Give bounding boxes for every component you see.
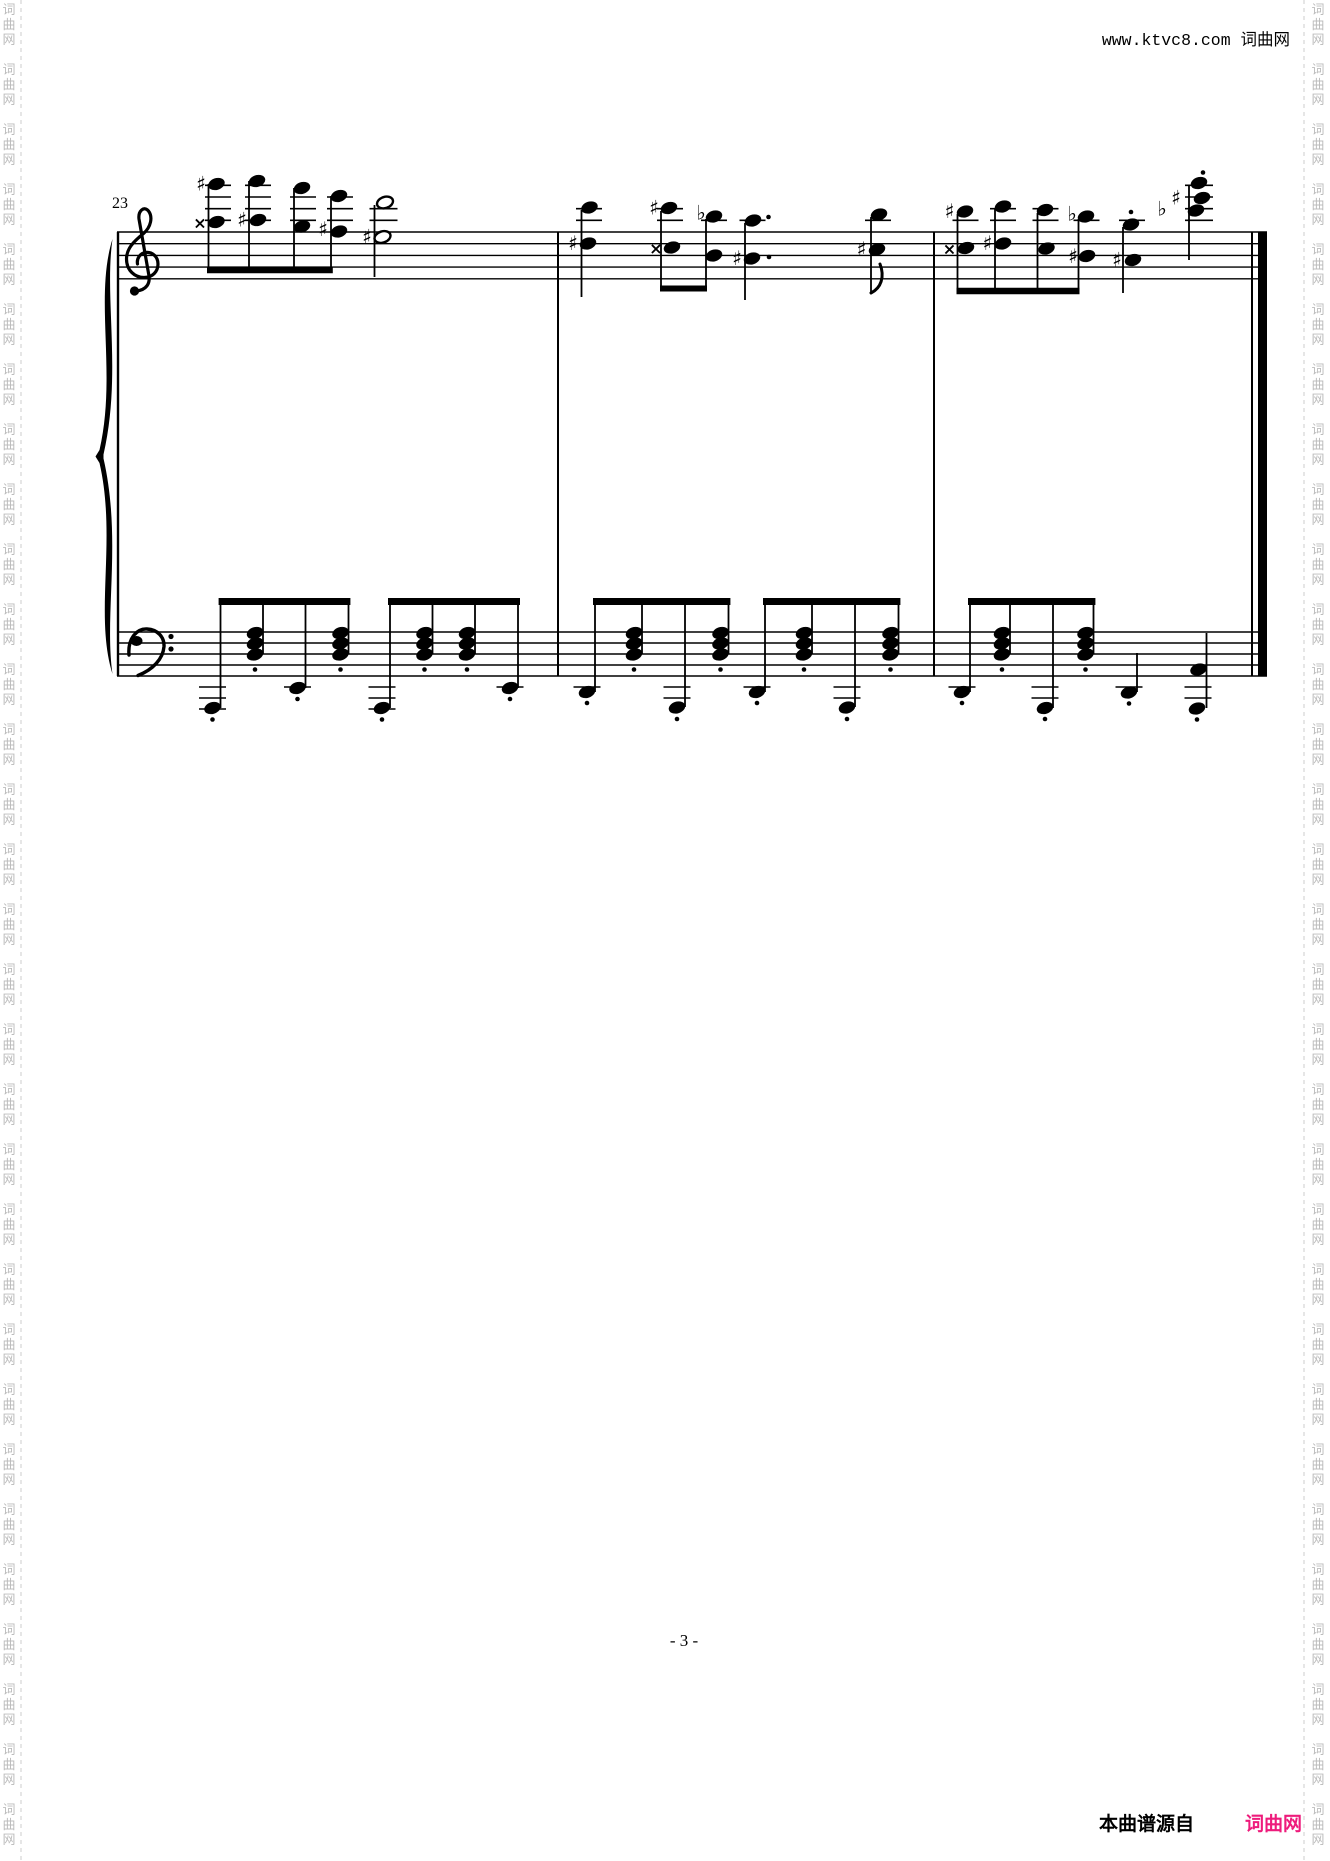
- beam: [660, 286, 707, 292]
- watermark-char: 曲: [1311, 1218, 1324, 1233]
- beam: [207, 267, 333, 274]
- staccato-dot: [422, 667, 427, 672]
- watermark-char: 曲: [1311, 438, 1324, 453]
- notehead: [794, 647, 813, 663]
- watermark-char: 网: [1311, 33, 1324, 48]
- sharp-accidental: ♯: [732, 246, 742, 270]
- dot: [1195, 717, 1200, 722]
- notehead: [500, 680, 519, 696]
- watermark-char: 曲: [2, 198, 15, 213]
- watermark-char: 词: [2, 783, 15, 798]
- watermark-char: 曲: [2, 258, 15, 273]
- watermark-char: 曲: [2, 1638, 15, 1653]
- watermark-char: 曲: [1311, 1458, 1324, 1473]
- watermark-char: 词: [2, 903, 15, 918]
- watermark-char: 曲: [2, 738, 15, 753]
- watermark-char: 词: [2, 423, 15, 438]
- dot: [1043, 717, 1048, 722]
- flat-accidental: ♭: [1067, 202, 1076, 226]
- notehead: [881, 647, 900, 663]
- watermark-char: 网: [1311, 513, 1324, 528]
- watermark-char: 词: [2, 1023, 15, 1038]
- watermark-char: 词: [1311, 483, 1324, 498]
- watermark-char: 曲: [2, 798, 15, 813]
- watermark-char: 网: [1311, 153, 1324, 168]
- watermark-char: 曲: [2, 1338, 15, 1353]
- watermark-char: 曲: [2, 1818, 15, 1833]
- watermark-char: 网: [2, 813, 15, 828]
- sharp-accidental: ♯: [1112, 248, 1122, 272]
- sheet-music-page: 词曲网词曲网词曲网词曲网词曲网词曲网词曲网词曲网词曲网词曲网词曲网词曲网词曲网词…: [0, 0, 1330, 1861]
- watermark-char: 词: [1311, 843, 1324, 858]
- notehead: [457, 647, 476, 663]
- beam: [219, 598, 351, 605]
- double-sharp-accidental: ×: [649, 239, 662, 258]
- watermark-char: 曲: [1311, 18, 1324, 33]
- watermark-char: 词: [1311, 1443, 1324, 1458]
- watermark-char: 词: [2, 1443, 15, 1458]
- watermark-char: 曲: [1311, 1698, 1324, 1713]
- watermark-char: 曲: [2, 858, 15, 873]
- watermark-char: 曲: [1311, 1638, 1324, 1653]
- watermark-char: 网: [1311, 1833, 1324, 1848]
- watermark-char: 曲: [1311, 318, 1324, 333]
- watermark-char: 词: [1311, 543, 1324, 558]
- notehead: [704, 248, 723, 264]
- watermark-char: 词: [2, 663, 15, 678]
- watermark-char: 词: [1311, 423, 1324, 438]
- watermark-char: 网: [2, 333, 15, 348]
- dot: [960, 701, 965, 706]
- sharp-accidental: ♯: [196, 172, 206, 196]
- notehead: [659, 200, 678, 216]
- watermark-char: 曲: [1311, 1338, 1324, 1353]
- watermark-char: 网: [1311, 93, 1324, 108]
- watermark-char: 词: [1311, 123, 1324, 138]
- watermark-char: 曲: [2, 1398, 15, 1413]
- notehead: [993, 199, 1012, 215]
- notehead: [247, 173, 266, 189]
- dot: [675, 717, 680, 722]
- double-sharp-accidental: ×: [943, 240, 956, 259]
- watermark-char: 词: [2, 1563, 15, 1578]
- watermark-char: 词: [2, 1503, 15, 1518]
- watermark-char: 词: [2, 483, 15, 498]
- watermark-char: 曲: [1311, 618, 1324, 633]
- staccato-dot: [718, 667, 723, 672]
- watermark-char: 曲: [1311, 498, 1324, 513]
- watermark-char: 词: [2, 723, 15, 738]
- watermark-char: 曲: [2, 1158, 15, 1173]
- watermark-char: 词: [1311, 363, 1324, 378]
- notehead: [1187, 701, 1206, 717]
- watermark-char: 词: [1311, 243, 1324, 258]
- staccato-dot: [1083, 667, 1088, 672]
- barlines: [118, 232, 1267, 676]
- notehead: [704, 209, 723, 225]
- notehead: [1189, 175, 1208, 191]
- watermark-char: 曲: [1311, 1158, 1324, 1173]
- watermark-char: 网: [1311, 693, 1324, 708]
- watermark-char: 网: [1311, 813, 1324, 828]
- watermark-char: 网: [2, 1773, 15, 1788]
- dot: [1201, 170, 1206, 175]
- watermark-char: 曲: [2, 1278, 15, 1293]
- watermark-char: 网: [1311, 1173, 1324, 1188]
- watermark-char: 曲: [2, 1038, 15, 1053]
- notehead: [292, 180, 311, 196]
- grand-staff-system: ♯×♯♯♯♯♯×♭♯♯♯×♯♭♯♯♭♯: [96, 170, 1268, 722]
- watermark-char: 词: [2, 363, 15, 378]
- watermark-char: 曲: [2, 1578, 15, 1593]
- sharp-accidental: ♯: [1171, 186, 1181, 210]
- dot: [767, 255, 772, 260]
- watermark-char: 词: [1311, 1203, 1324, 1218]
- watermark-char: 曲: [1311, 1758, 1324, 1773]
- watermark-char: 网: [1311, 1653, 1324, 1668]
- sharp-accidental: ♯: [983, 231, 993, 255]
- beam: [957, 288, 1080, 295]
- flat-accidental: ♭: [696, 201, 705, 225]
- watermark-char: 词: [2, 1143, 15, 1158]
- watermark-char: 曲: [1311, 678, 1324, 693]
- sharp-accidental: ♯: [857, 237, 867, 261]
- watermark-char: 曲: [1311, 918, 1324, 933]
- watermark-char: 词: [1311, 663, 1324, 678]
- watermark-char: 网: [2, 393, 15, 408]
- watermark-char: 曲: [2, 18, 15, 33]
- watermark-char: 词: [2, 243, 15, 258]
- treble-clef-icon: [127, 209, 159, 296]
- notehead: [1076, 647, 1095, 663]
- watermark-char: 网: [2, 153, 15, 168]
- sharp-accidental: ♯: [945, 199, 955, 223]
- notehead: [580, 200, 599, 216]
- bass-clef-icon: [129, 629, 174, 676]
- watermark-char: 曲: [1311, 78, 1324, 93]
- watermark-char: 词: [2, 1803, 15, 1818]
- watermark-char: 曲: [2, 1758, 15, 1773]
- noteheads: [203, 173, 1212, 716]
- sharp-accidental: ♯: [649, 196, 659, 220]
- staff-lines: [117, 232, 1267, 676]
- watermark-char: 词: [2, 63, 15, 78]
- watermark-char: 曲: [2, 558, 15, 573]
- watermark-char: 曲: [1311, 858, 1324, 873]
- dot: [585, 701, 590, 706]
- notehead: [372, 700, 391, 716]
- watermark-char: 词: [2, 1083, 15, 1098]
- watermark-char: 网: [1311, 333, 1324, 348]
- watermark-char: 词: [2, 1323, 15, 1338]
- dot: [1129, 210, 1134, 215]
- double-sharp-accidental: ×: [193, 214, 206, 233]
- watermark-char: 网: [1311, 993, 1324, 1008]
- watermark-char: 曲: [1311, 1038, 1324, 1053]
- watermark-char: 词: [1311, 603, 1324, 618]
- dot: [755, 701, 760, 706]
- watermark-char: 曲: [2, 618, 15, 633]
- watermark-char: 曲: [1311, 378, 1324, 393]
- staccato-dot: [1000, 667, 1005, 672]
- watermark-char: 网: [1311, 1413, 1324, 1428]
- watermark-char: 网: [1311, 933, 1324, 948]
- notehead: [207, 214, 226, 230]
- watermark-char: 网: [2, 33, 15, 48]
- notehead: [1192, 190, 1211, 206]
- watermark-char: 网: [2, 93, 15, 108]
- watermark-char: 词: [1311, 1323, 1324, 1338]
- watermark-char: 网: [2, 1833, 15, 1848]
- watermark-char: 词: [1311, 3, 1324, 18]
- dot: [295, 697, 300, 702]
- dot: [1127, 701, 1132, 706]
- watermark-char: 词: [1311, 63, 1324, 78]
- watermark-char: 网: [2, 273, 15, 288]
- watermark-char: 词: [1311, 783, 1324, 798]
- watermark-char: 曲: [2, 1098, 15, 1113]
- watermark-char: 曲: [1311, 1818, 1324, 1833]
- watermark-char: 词: [1311, 183, 1324, 198]
- staccato-dot: [253, 667, 258, 672]
- notehead: [245, 647, 264, 663]
- watermark-char: 曲: [2, 978, 15, 993]
- watermark-char: 网: [2, 1533, 15, 1548]
- watermark-char: 词: [2, 1623, 15, 1638]
- watermark-char: 网: [2, 213, 15, 228]
- watermark-char: 词: [1311, 1683, 1324, 1698]
- watermark-char: 曲: [2, 1698, 15, 1713]
- watermark-char: 曲: [2, 318, 15, 333]
- watermark-char: 网: [1311, 1113, 1324, 1128]
- watermark-char: 曲: [1311, 1578, 1324, 1593]
- watermark-char: 网: [2, 573, 15, 588]
- sharp-accidental: ♯: [362, 225, 372, 249]
- watermark-char: 曲: [1311, 1098, 1324, 1113]
- staccato-dot: [338, 667, 343, 672]
- watermark-char: 词: [2, 1263, 15, 1278]
- watermark-char: 曲: [1311, 978, 1324, 993]
- notehead: [415, 647, 434, 663]
- watermark-char: 词: [1311, 723, 1324, 738]
- watermark-char: 网: [2, 1113, 15, 1128]
- notehead: [203, 700, 222, 716]
- watermark-char: 网: [1311, 453, 1324, 468]
- sharp-accidental: ♯: [1068, 244, 1078, 268]
- notehead: [331, 647, 350, 663]
- watermark-char: 词: [1311, 1383, 1324, 1398]
- watermark-right-column: 词曲网词曲网词曲网词曲网词曲网词曲网词曲网词曲网词曲网词曲网词曲网词曲网词曲网词…: [1304, 0, 1325, 1861]
- notehead: [329, 188, 348, 204]
- staccato-dot: [888, 667, 893, 672]
- notehead: [662, 240, 681, 256]
- watermark-char: 网: [1311, 1473, 1324, 1488]
- watermark-char: 网: [2, 1233, 15, 1248]
- notehead: [1123, 252, 1142, 268]
- notehead: [1077, 248, 1096, 264]
- notehead: [993, 236, 1012, 252]
- watermark-char: 网: [1311, 213, 1324, 228]
- watermark-char: 网: [2, 1413, 15, 1428]
- watermark-char: 网: [1311, 1233, 1324, 1248]
- watermark-char: 词: [1311, 1623, 1324, 1638]
- watermark-char: 网: [2, 1053, 15, 1068]
- watermark-char: 网: [2, 1473, 15, 1488]
- watermark-char: 网: [2, 1593, 15, 1608]
- watermark-char: 曲: [2, 1518, 15, 1533]
- notehead: [992, 647, 1011, 663]
- notehead: [207, 176, 226, 192]
- watermark-char: 网: [1311, 1593, 1324, 1608]
- watermark-char: 词: [2, 1683, 15, 1698]
- watermark-char: 网: [2, 453, 15, 468]
- watermark-char: 网: [1311, 1533, 1324, 1548]
- watermark-char: 词: [1311, 963, 1324, 978]
- flat-accidental: ♭: [1157, 197, 1166, 221]
- watermark-char: 网: [1311, 873, 1324, 888]
- watermark-char: 网: [2, 513, 15, 528]
- notehead: [1121, 217, 1140, 233]
- watermark-char: 网: [2, 633, 15, 648]
- watermark-char: 词: [1311, 1083, 1324, 1098]
- notehead: [624, 647, 643, 663]
- watermark-char: 网: [2, 1713, 15, 1728]
- watermark-char: 网: [1311, 633, 1324, 648]
- watermark-char: 网: [2, 933, 15, 948]
- watermark-char: 网: [1311, 753, 1324, 768]
- staccato-dot: [465, 667, 470, 672]
- watermark-char: 网: [2, 873, 15, 888]
- watermark-char: 网: [1311, 1353, 1324, 1368]
- watermark-char: 曲: [2, 678, 15, 693]
- site-url-text: www.ktvc8.com 词曲网: [1102, 30, 1290, 50]
- watermark-char: 词: [2, 843, 15, 858]
- dot: [766, 215, 771, 220]
- notehead: [248, 212, 267, 228]
- watermark-char: 词: [1311, 303, 1324, 318]
- watermark-char: 曲: [2, 138, 15, 153]
- watermark-char: 曲: [1311, 258, 1324, 273]
- notehead: [1037, 241, 1056, 257]
- watermark-char: 词: [2, 543, 15, 558]
- watermark-char: 曲: [1311, 198, 1324, 213]
- watermark-char: 词: [2, 303, 15, 318]
- score-canvas: 词曲网词曲网词曲网词曲网词曲网词曲网词曲网词曲网词曲网词曲网词曲网词曲网词曲网词…: [0, 0, 1330, 1861]
- watermark-left-column: 词曲网词曲网词曲网词曲网词曲网词曲网词曲网词曲网词曲网词曲网词曲网词曲网词曲网词…: [2, 0, 21, 1861]
- notehead: [711, 647, 730, 663]
- watermark-char: 曲: [1311, 558, 1324, 573]
- watermark-char: 曲: [1311, 138, 1324, 153]
- watermark-char: 曲: [1311, 738, 1324, 753]
- watermark-char: 词: [2, 123, 15, 138]
- watermark-char: 网: [1311, 1293, 1324, 1308]
- beam: [388, 598, 520, 605]
- final-barline-thick: [1258, 232, 1267, 676]
- beam: [968, 598, 1095, 605]
- watermark-char: 网: [1311, 273, 1324, 288]
- measure-number: 23: [112, 195, 128, 212]
- notehead: [1035, 700, 1054, 716]
- sharp-accidental: ♯: [568, 231, 578, 255]
- beam: [593, 598, 730, 605]
- watermark-char: 网: [2, 1653, 15, 1668]
- watermark-char: 曲: [1311, 1518, 1324, 1533]
- watermark-char: 网: [1311, 1773, 1324, 1788]
- watermark-char: 网: [1311, 393, 1324, 408]
- notehead: [743, 213, 762, 229]
- sharp-accidental: ♯: [237, 208, 247, 232]
- notehead: [288, 680, 307, 696]
- dot: [845, 717, 850, 722]
- watermark-char: 曲: [2, 378, 15, 393]
- staccato-dot: [802, 667, 807, 672]
- watermark-char: 曲: [1311, 1398, 1324, 1413]
- watermark-char: 词: [2, 603, 15, 618]
- watermark-char: 词: [1311, 1503, 1324, 1518]
- watermark-char: 网: [2, 1173, 15, 1188]
- watermark-char: 词: [1311, 1803, 1324, 1818]
- watermark-char: 词: [2, 1743, 15, 1758]
- watermark-char: 词: [2, 3, 15, 18]
- watermark-char: 词: [2, 1203, 15, 1218]
- dot: [210, 717, 215, 722]
- staccato-dot: [632, 667, 637, 672]
- watermark-char: 词: [1311, 1563, 1324, 1578]
- notehead: [329, 224, 348, 240]
- watermark-char: 曲: [1311, 1278, 1324, 1293]
- footer-source-label: 本曲谱源自: [1099, 1812, 1194, 1835]
- watermark-char: 曲: [2, 918, 15, 933]
- watermark-char: 词: [2, 183, 15, 198]
- watermark-char: 网: [2, 993, 15, 1008]
- watermark-char: 词: [1311, 1143, 1324, 1158]
- notehead: [956, 240, 975, 256]
- watermark-char: 词: [2, 963, 15, 978]
- watermark-char: 曲: [2, 438, 15, 453]
- notehead: [1189, 662, 1208, 678]
- beams: [207, 267, 1095, 605]
- watermark-char: 曲: [2, 1458, 15, 1473]
- footer-site-name[interactable]: 词曲网: [1245, 1813, 1302, 1835]
- brace: [96, 239, 113, 674]
- watermark-char: 网: [1311, 1053, 1324, 1068]
- page-number: - 3 -: [670, 1631, 699, 1650]
- dot: [380, 717, 385, 722]
- watermark-char: 网: [2, 693, 15, 708]
- watermark-char: 曲: [2, 78, 15, 93]
- watermark-char: 曲: [2, 498, 15, 513]
- watermark-char: 曲: [2, 1218, 15, 1233]
- watermark-char: 词: [1311, 1263, 1324, 1278]
- watermark-char: 网: [2, 753, 15, 768]
- notehead: [837, 700, 856, 716]
- beam: [763, 598, 900, 605]
- watermark-char: 词: [1311, 903, 1324, 918]
- watermark-char: 网: [2, 1353, 15, 1368]
- sharp-accidental: ♯: [318, 217, 328, 241]
- watermark-char: 曲: [1311, 798, 1324, 813]
- watermark-char: 网: [1311, 1713, 1324, 1728]
- watermark-char: 词: [2, 1383, 15, 1398]
- watermark-char: 词: [1311, 1743, 1324, 1758]
- accidentals: ♯×♯♯♯♯♯×♭♯♯♯×♯♭♯♯♭♯: [193, 172, 1181, 272]
- watermark-char: 词: [1311, 1023, 1324, 1038]
- dot: [508, 697, 513, 702]
- notehead: [667, 700, 686, 716]
- watermark-char: 网: [2, 1293, 15, 1308]
- watermark-char: 网: [1311, 573, 1324, 588]
